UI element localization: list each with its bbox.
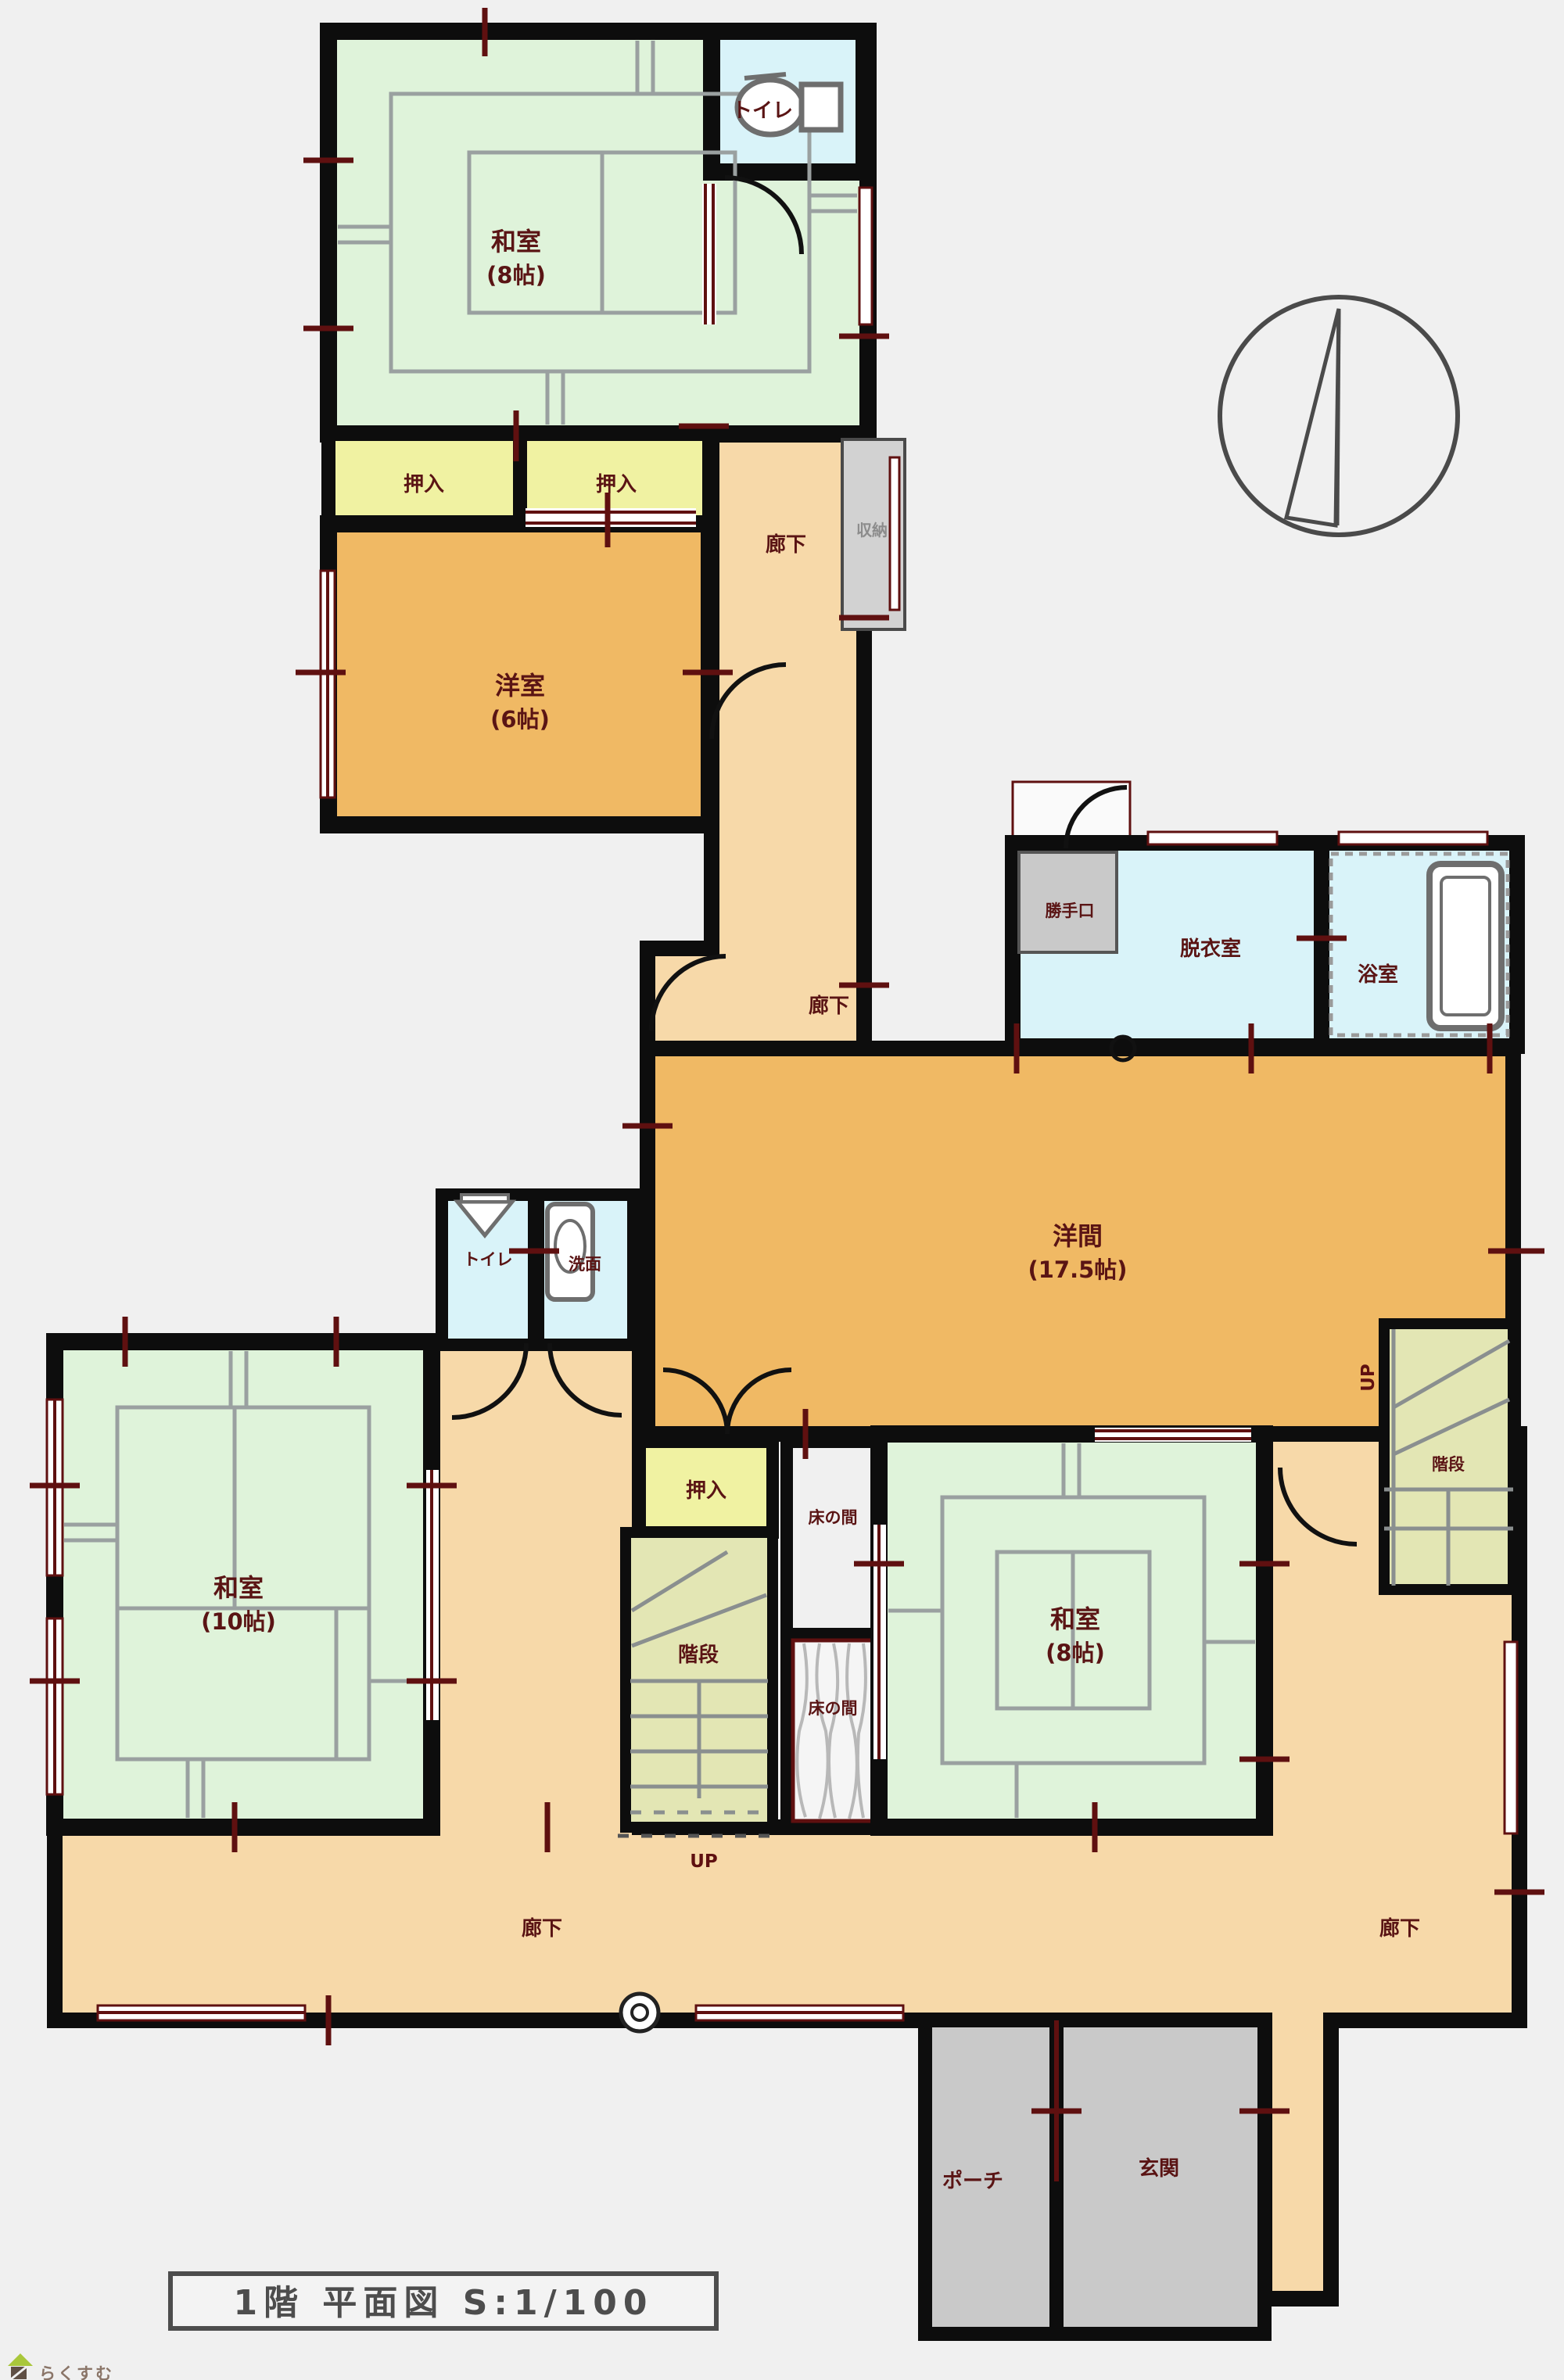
label-tokonoma-upper: 床の間 — [809, 1508, 858, 1527]
floor-plan-canvas: 和室 (8帖) トイレ 廊下 収納 押入 押入 洋室 (6帖) 廊下 勝手口 脱… — [0, 0, 1564, 2380]
label-youshitsu: 洋室 — [495, 671, 545, 701]
label-washitsu-10: 和室 — [213, 1573, 264, 1603]
label-stairs-center: 階段 — [678, 1643, 719, 1667]
label-toilet-top: トイレ — [732, 99, 793, 123]
label-toilet-mid: トイレ — [464, 1250, 513, 1269]
well-marker — [621, 1994, 658, 2031]
label-stairs-right-up: UP — [1358, 1364, 1379, 1392]
label-youma-size: (17.5帖) — [1028, 1256, 1127, 1283]
watermark-text: らくすむ — [39, 2364, 114, 2380]
plan-title: 1階 平面図 S:1/100 — [233, 2283, 653, 2323]
label-washitsu-top: 和室 — [491, 227, 541, 256]
label-washitsu-top-size: (8帖) — [486, 262, 546, 289]
label-youshitsu-size: (6帖) — [490, 706, 550, 733]
label-closet-storage: 収納 — [856, 521, 888, 539]
label-hallway-top: 廊下 — [766, 532, 806, 557]
label-washitsu-8: 和室 — [1050, 1604, 1100, 1634]
label-genkan: 玄関 — [1139, 2156, 1179, 2181]
room-tokonoma-upper — [787, 1442, 879, 1634]
floor-plan-drawing: 和室 (8帖) トイレ 廊下 収納 押入 押入 洋室 (6帖) 廊下 勝手口 脱… — [0, 0, 1564, 2380]
label-stairs-center-up: UP — [690, 1851, 718, 1872]
label-washitsu-10-size: (10帖) — [201, 1608, 276, 1635]
label-washitsu-8-size: (8帖) — [1046, 1640, 1105, 1666]
label-hallway-bottom-left: 廊下 — [522, 1916, 562, 1941]
label-oshiire-mid: 押入 — [686, 1479, 726, 1503]
label-youma: 洋間 — [1053, 1221, 1103, 1251]
label-porch: ポーチ — [942, 2169, 1003, 2193]
label-tokonoma-lower: 床の間 — [809, 1699, 858, 1718]
label-yokushitsu: 浴室 — [1358, 962, 1398, 987]
label-hallway-mid: 廊下 — [809, 994, 849, 1018]
label-oshiire-left: 押入 — [404, 473, 444, 496]
label-katteguchi: 勝手口 — [1046, 901, 1095, 920]
label-oshiire-right: 押入 — [596, 473, 637, 496]
label-datsuishitsu: 脱衣室 — [1180, 937, 1241, 961]
label-stairs-right: 階段 — [1432, 1455, 1465, 1474]
label-senmen: 洗面 — [569, 1255, 601, 1274]
label-hallway-bottom-right: 廊下 — [1379, 1916, 1420, 1941]
